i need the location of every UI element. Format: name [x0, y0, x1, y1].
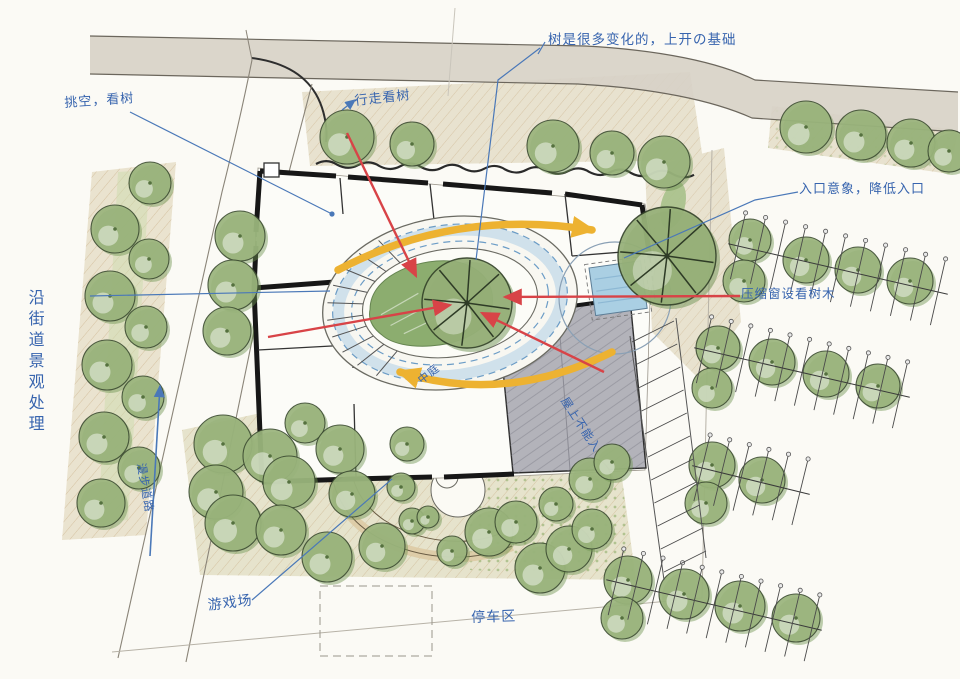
note-window-trees: 压缩窗设看树木 [741, 287, 836, 301]
site-edge-wavy-line [316, 161, 694, 177]
note-street-landscape: 沿街道景观处理 [26, 289, 44, 436]
note-entrance-image: 入口意象，降低入口 [799, 183, 925, 197]
site-plan-sketch: 树是很多变化的，上开の基础 行走看树 挑空，看树 入口意象，降低入口 压缩窗设看… [0, 0, 960, 679]
note-tree-variation: 树是很多变化的，上开の基础 [548, 33, 737, 48]
note-parking-area: 停车区 [471, 609, 517, 626]
site-plan-drawing [0, 0, 960, 679]
